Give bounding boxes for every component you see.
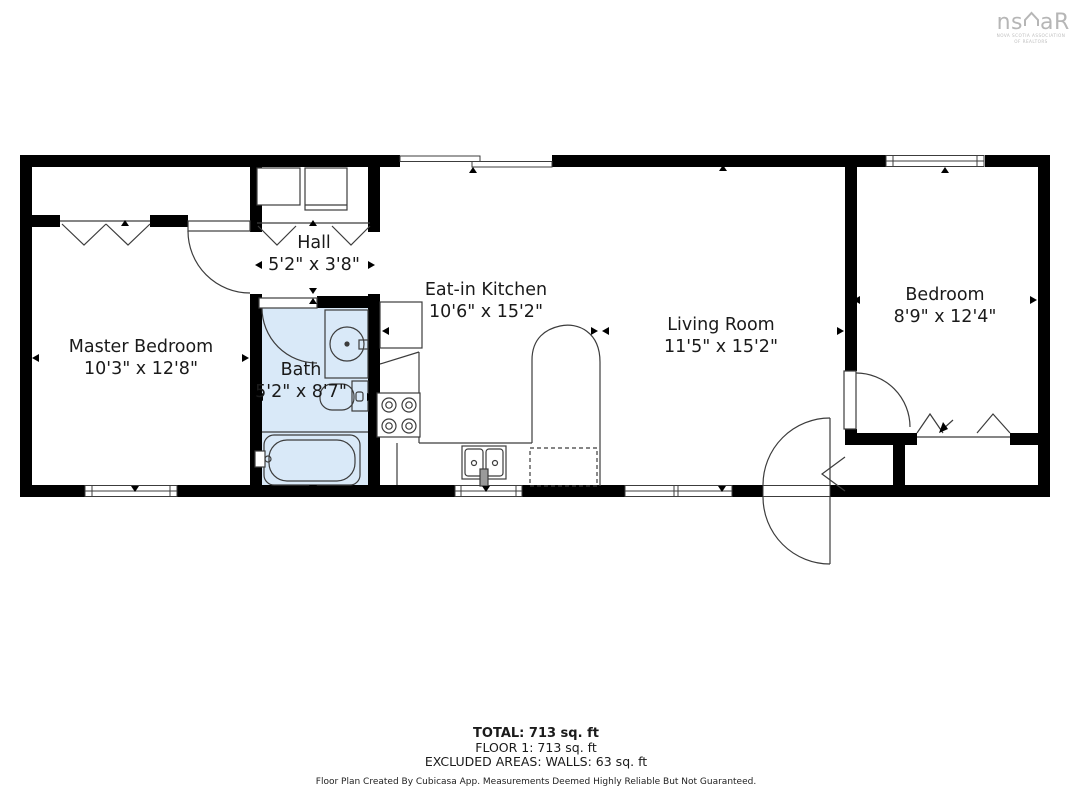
hall-dimensions: 5'2" x 3'8" <box>268 255 360 275</box>
appliance-space-dashed <box>530 448 597 486</box>
living-room-label: Living Room <box>667 315 774 335</box>
marker-hall-left <box>255 261 262 269</box>
bedroom-closet-bifold-1 <box>917 414 943 433</box>
kitchen-sliding-window-pane-1 <box>400 156 480 162</box>
bedroom-door-arc <box>856 373 910 427</box>
wall-bottom-4 <box>732 485 763 497</box>
master-closet-bifold-1 <box>62 224 106 245</box>
master-closet-bifold-2 <box>106 224 150 245</box>
marker-master-left <box>32 354 39 362</box>
logo-caption-1: NOVA SCOTIA ASSOCIATION <box>997 33 1066 38</box>
bedroom-label: Bedroom <box>905 285 984 305</box>
marker-hall-right <box>368 261 375 269</box>
bath-label: Bath <box>281 360 322 380</box>
wardrobe-2 <box>305 168 347 210</box>
wall-top-left <box>20 155 400 167</box>
wall-bedroom-closet-1 <box>857 433 917 445</box>
master-bedroom-door-leaf <box>188 221 250 231</box>
kitchen-dimensions: 10'6" x 15'2" <box>429 302 543 322</box>
marker-hall-down <box>309 288 317 294</box>
master-bedroom-label: Master Bedroom <box>69 337 213 357</box>
wall-bath-top-jamb <box>250 296 257 308</box>
marker-living-right <box>837 327 844 335</box>
marker-living-left <box>602 327 609 335</box>
total-area-text: TOTAL: 713 sq. ft <box>473 726 599 741</box>
wall-right <box>1038 155 1050 497</box>
interior-walls <box>32 155 1038 497</box>
wall-entry-vestibule <box>893 445 905 497</box>
bedroom-door-leaf <box>844 371 856 429</box>
wall-bath-top <box>317 296 380 308</box>
hall-wardrobes <box>257 168 347 210</box>
master-bedroom-dimensions: 10'3" x 12'8" <box>84 359 198 379</box>
wall-bottom-5 <box>830 485 1050 497</box>
marker-bedroom-up <box>941 167 949 173</box>
wall-bedroom-left-lower <box>845 429 857 445</box>
kitchen-fixtures <box>377 302 600 486</box>
hall-label: Hall <box>297 233 331 253</box>
entrance-door-arc-out <box>763 497 830 564</box>
refrigerator <box>380 302 422 348</box>
marker-master-right <box>242 354 249 362</box>
kitchen-peninsula <box>532 325 600 486</box>
logo-house-icon <box>1025 13 1038 26</box>
tub-faucet <box>255 451 265 467</box>
floor-plan-page: Master Bedroom 10'3" x 12'8" Hall 5'2" x… <box>0 0 1071 803</box>
wardrobe-1 <box>257 168 300 205</box>
wall-left <box>20 155 32 497</box>
excluded-area-text: EXCLUDED AREAS: WALLS: 63 sq. ft <box>425 754 647 769</box>
bath-sink-drain <box>345 342 349 346</box>
wall-master-closet-2 <box>150 215 188 227</box>
credit-text: Floor Plan Created By Cubicasa App. Meas… <box>316 777 756 787</box>
logo-text-right: aR <box>1040 10 1070 35</box>
closet-doors <box>60 221 1010 437</box>
living-room-dimensions: 11'5" x 15'2" <box>664 337 778 357</box>
entrance-door-arc-in <box>763 418 830 485</box>
marker-kitchen-up <box>469 167 477 173</box>
marker-bedroom-right <box>1030 296 1037 304</box>
sink-faucet <box>480 469 488 486</box>
wall-bottom-3 <box>522 485 625 497</box>
master-bedroom-door-arc <box>188 231 250 293</box>
logo-caption-2: OF REALTORS <box>1014 39 1048 44</box>
hall-closet-bifold-2 <box>332 226 370 245</box>
bedroom-dimensions: 8'9" x 12'4" <box>894 307 997 327</box>
wall-bottom-2 <box>177 485 455 497</box>
corner-counter-line <box>380 352 419 364</box>
summary-block: TOTAL: 713 sq. ft FLOOR 1: 713 sq. ft EX… <box>316 726 756 787</box>
floor-area-text: FLOOR 1: 713 sq. ft <box>475 740 597 755</box>
logo-text-left: ns <box>997 10 1023 35</box>
floor-plan-drawing: Master Bedroom 10'3" x 12'8" Hall 5'2" x… <box>0 0 1071 803</box>
kitchen-sliding-window-pane-2 <box>472 162 552 168</box>
entrance-threshold <box>763 486 830 497</box>
bath-door-leaf <box>259 298 317 308</box>
wall-master-closet-1 <box>32 215 60 227</box>
marker-kitchen-right <box>591 327 598 335</box>
wall-top-mid <box>552 155 888 167</box>
wall-hall-right-upper <box>368 155 380 232</box>
bedroom-closet-arrowhead <box>939 422 948 433</box>
nsar-logo: ns aR NOVA SCOTIA ASSOCIATION OF REALTOR… <box>997 10 1070 44</box>
hall-closet-bifold-1 <box>258 226 296 245</box>
bedroom-closet-bifold-2 <box>977 414 1010 433</box>
wall-bedroom-closet-2 <box>1010 433 1038 445</box>
kitchen-label: Eat-in Kitchen <box>425 280 547 300</box>
wall-bottom-1 <box>20 485 85 497</box>
wall-bedroom-left-upper <box>845 155 857 371</box>
bath-dimensions: 5'2" x 8'7" <box>255 382 347 402</box>
